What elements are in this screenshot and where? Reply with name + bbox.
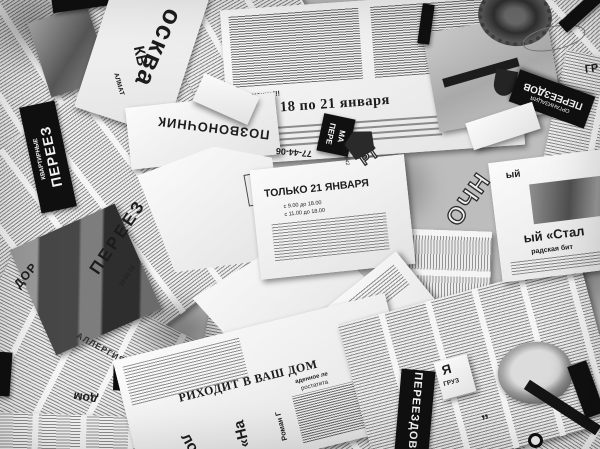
headline-yi: ый [505, 170, 521, 182]
headline-gr: ГР [584, 63, 599, 76]
banner-label: ПЕРЕЕЗДОВ [406, 372, 425, 449]
photo-block [529, 174, 600, 224]
label-gruz: ГРУЗ [443, 378, 460, 389]
text-columns [228, 7, 363, 88]
banner-label: МА [336, 129, 347, 143]
banner-pereezdov: ПЕРЕЕЗДОВ [394, 369, 435, 449]
headline-stal: ый «Стал [523, 224, 585, 245]
marker-tip-ring [528, 433, 543, 448]
headline-ya: Я [440, 362, 453, 378]
headline-lo: ло [177, 431, 206, 449]
byline-roman: Роман Г [267, 381, 289, 441]
headline-dates: с 18 по 21 января [268, 93, 390, 117]
headline-na: «На [228, 406, 253, 449]
newspaper-collage-photo: осква КВ АЛМАТ Внимание!!! с 18 по 21 ян… [0, 0, 600, 449]
text-columns [271, 211, 389, 261]
banner-label: ПЕРЕ [324, 122, 337, 145]
